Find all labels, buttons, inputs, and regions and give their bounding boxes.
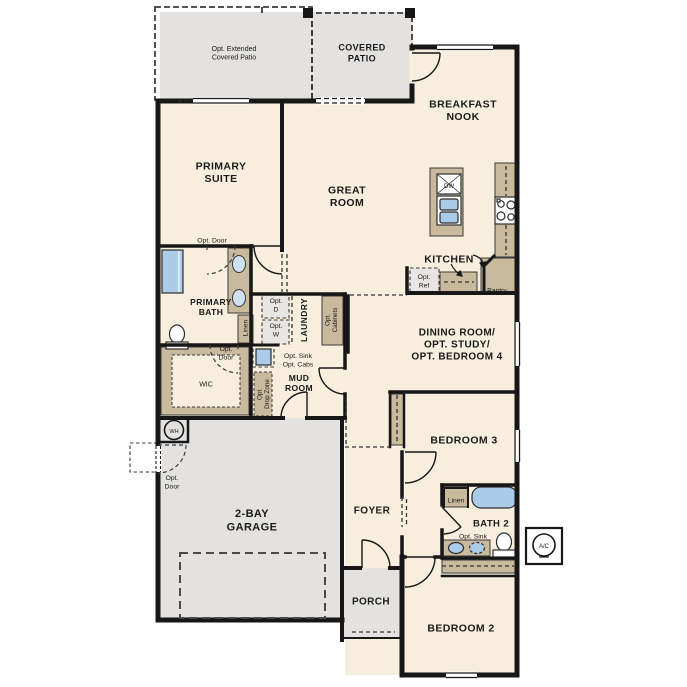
svg-text:DW: DW — [444, 184, 454, 190]
svg-text:GREATROOM: GREATROOM — [328, 184, 366, 209]
label-opt-sink-bath2: Opt. Sink — [459, 533, 488, 540]
label-opt-extended-covered-patio: Opt. ExtendedCovered Patio — [212, 46, 257, 62]
svg-text:BEDROOM 2: BEDROOM 2 — [427, 623, 494, 635]
burner-4 — [508, 214, 514, 220]
window-bedroom2 — [446, 672, 477, 680]
svg-text:MUDROOM: MUDROOM — [285, 373, 313, 393]
label-pantry: Pantry — [487, 287, 507, 294]
label-linen-primary: Linen — [242, 319, 249, 336]
label-bath-2: BATH 2 — [473, 518, 509, 529]
label-opt-door-garage: Opt.Door — [165, 475, 180, 490]
kitchen-sink-basin-1 — [440, 199, 458, 210]
label-opt-door-suite: Opt. Door — [197, 237, 227, 244]
label-foyer: FOYER — [354, 506, 391, 517]
bath2-sink — [449, 543, 464, 554]
label-porch: PORCH — [352, 597, 390, 608]
primary-sink-1 — [233, 256, 246, 273]
window-dining — [514, 322, 522, 366]
label-great-room: GREATROOM — [328, 184, 366, 209]
window-primary-suite — [193, 97, 249, 105]
primary-toilet-bowl — [170, 325, 185, 343]
bath2-opt-sink — [470, 543, 485, 554]
svg-text:Opt. Sink: Opt. Sink — [459, 533, 488, 540]
burner-2 — [507, 201, 515, 209]
svg-text:Opt. ExtendedCovered Patio: Opt. ExtendedCovered Patio — [212, 46, 257, 62]
patio-post-right — [405, 8, 415, 18]
label-dishwasher: DW — [444, 184, 454, 190]
svg-text:BEDROOM 3: BEDROOM 3 — [430, 435, 497, 447]
label-opt-ref: Opt.Ref — [418, 274, 431, 289]
label-opt-door-bath: Opt.Door — [219, 346, 234, 361]
label-laundry: LAUNDRY — [299, 298, 309, 342]
window-garage-opt-door — [155, 446, 163, 472]
svg-text:WH: WH — [169, 429, 178, 435]
svg-text:Opt. Door: Opt. Door — [197, 237, 227, 244]
garage-opt-door-box — [130, 443, 158, 472]
label-bedroom-2: BEDROOM 2 — [427, 623, 494, 635]
label-mud-room: MUDROOM — [285, 373, 313, 393]
window-bedroom3 — [514, 430, 522, 462]
svg-text:BATH 2: BATH 2 — [473, 518, 509, 529]
svg-text:Opt.Door: Opt.Door — [219, 346, 234, 361]
svg-text:Opt.Door: Opt.Door — [165, 475, 180, 490]
svg-text:Pantry: Pantry — [487, 287, 507, 294]
breakfast-nook-floor — [412, 47, 517, 102]
bath2-toilet-tank — [493, 550, 515, 557]
svg-text:Linen: Linen — [448, 497, 465, 504]
floor-plan-page: Opt. ExtendedCovered PatioCOVEREDPATIOBR… — [0, 0, 687, 687]
svg-text:LAUNDRY: LAUNDRY — [299, 298, 309, 342]
burner-3 — [497, 212, 505, 220]
label-bedroom-3: BEDROOM 3 — [430, 435, 497, 447]
svg-text:Linen: Linen — [242, 319, 249, 336]
svg-text:KITCHEN: KITCHEN — [424, 254, 473, 266]
bath2-tub — [472, 487, 517, 508]
svg-text:A/C: A/C — [539, 544, 550, 550]
label-water-heater: WH — [169, 429, 178, 435]
patio-post-left — [303, 8, 313, 18]
window-greatroom-slider — [316, 97, 365, 105]
svg-text:WIC: WIC — [199, 381, 213, 388]
primary-sink-2 — [233, 290, 246, 307]
svg-text:DINING ROOM/OPT. STUDY/OPT. BE: DINING ROOM/OPT. STUDY/OPT. BEDROOM 4 — [411, 327, 502, 362]
label-kitchen: KITCHEN — [424, 254, 473, 266]
label-ac-unit: A/C — [539, 544, 550, 550]
label-linen-bath2: Linen — [448, 497, 465, 504]
cooktop-knob — [497, 199, 500, 202]
mudroom-opt-sink — [256, 349, 271, 365]
svg-text:PORCH: PORCH — [352, 597, 390, 608]
svg-text:Opt. SinkOpt. Cabs: Opt. SinkOpt. Cabs — [283, 353, 314, 368]
window-breakfast-nook — [437, 44, 493, 52]
svg-text:FOYER: FOYER — [354, 506, 391, 517]
label-wic: WIC — [199, 381, 213, 388]
label-opt-sink-cabs: Opt. SinkOpt. Cabs — [283, 353, 314, 368]
floor-plan-drawing: Opt. ExtendedCovered PatioCOVEREDPATIOBR… — [0, 0, 687, 687]
label-dining-room: DINING ROOM/OPT. STUDY/OPT. BEDROOM 4 — [411, 327, 502, 362]
primary-shower — [162, 250, 183, 293]
kitchen-sink-basin-2 — [440, 212, 458, 223]
svg-text:Opt.Ref: Opt.Ref — [418, 274, 431, 289]
bath2-toilet-bowl — [497, 533, 512, 551]
